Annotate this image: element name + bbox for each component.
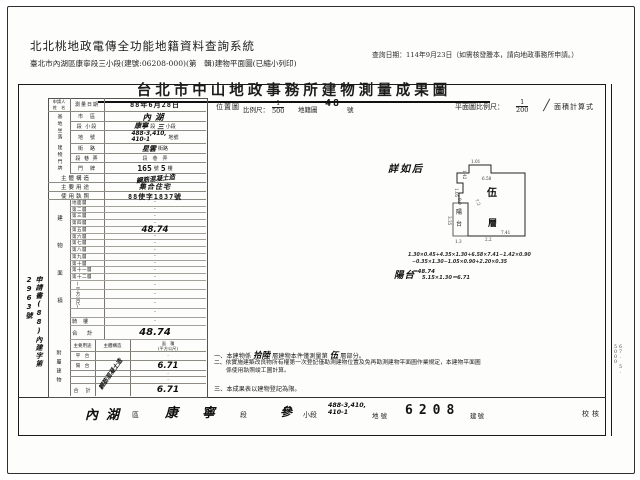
floor-label: 第九層	[70, 254, 104, 260]
structure-row: 主體構造 鋼筋混凝土造	[48, 174, 206, 183]
dim-diagonal: 7.2	[474, 198, 482, 207]
lot-number-row: 地 號 488-3,410, 410-1 地號	[70, 131, 206, 144]
lot-suffix: 地號	[169, 134, 179, 141]
survey-date-row: 測量日期 88年6月28日	[70, 98, 206, 112]
dim-balcony-bottom: 1.3	[455, 239, 462, 244]
lot-value-line2: 410-1	[131, 137, 166, 143]
floor-row-4: 第四層·	[70, 220, 206, 227]
floor-label	[70, 281, 104, 289]
footer-check-label: 校核	[582, 409, 602, 419]
floor-row-9: 第九層·	[70, 254, 206, 261]
plan-storey-label: 層	[488, 217, 497, 229]
footer-lot-line1: 488-3,410,	[328, 402, 366, 409]
arcade-label: 騎 樓	[70, 318, 104, 325]
floor-value: ·	[104, 254, 206, 260]
floor-total-row: 合 計48.74	[70, 326, 206, 340]
annex-use	[70, 371, 95, 376]
document-subtitle: 臺北市內湖區康寧段三小段(建號:06208-000)(第 輯)建物平面圖(已縮小…	[30, 58, 297, 69]
floor-value: ·	[104, 207, 206, 213]
plan-scale-fraction: 1200	[516, 96, 528, 115]
section-value-hw: 康寧	[134, 121, 148, 131]
balcony-area-value: 6.71	[158, 361, 179, 371]
annex-header-row: 主要用途 主體構造 面 積 (平方公尺)	[70, 340, 206, 352]
building-address-group-label: 建物門牌	[48, 144, 70, 174]
annex-total-value: 6.71	[157, 385, 179, 395]
floor-label: 第五層	[70, 227, 104, 233]
floor-value: ·	[104, 261, 206, 267]
dim-bottom-edge: 7.41	[501, 230, 511, 235]
floor-label: 第四層	[70, 220, 104, 226]
floor-value: ·	[104, 300, 206, 308]
query-date: 查詢日期：114年9月23日（如需核發謄本，請向地政事務所申請。）	[372, 49, 578, 59]
footer-district: 內湖	[85, 404, 127, 423]
plan-scale-denominator: 200	[516, 107, 528, 114]
floor-value: ·	[104, 247, 206, 253]
annex-area: ·	[130, 377, 206, 383]
floor-label: 第八層	[70, 247, 104, 253]
floor-area-group-label: 建物面積	[48, 205, 70, 335]
annex-use: 平 台	[70, 352, 95, 360]
floor-row-6: 第六層·	[70, 234, 206, 241]
footer-building-suffix: 建號	[470, 410, 485, 420]
section-suffix-1: 段	[150, 123, 155, 130]
structure-label: 主體構造	[48, 174, 104, 182]
dim-bottom-small: 2.2	[485, 237, 492, 242]
balcony-outline	[453, 203, 468, 236]
house-number-p1: 號	[154, 165, 159, 172]
note-2: 二、依實施建築改良物所有權第一次登記僅勘測建物位置及免再勘測建物平面圖作業規定，…	[214, 360, 486, 375]
lane-alley-label: 段 巷 弄	[70, 154, 104, 162]
footer-lot-numbers: 488-3,410, 410-1	[328, 402, 366, 416]
cadastre-map-number: 48	[325, 98, 341, 109]
survey-date-value: 88年6月28日	[130, 100, 180, 110]
system-title: 北北桃地政電傳全功能地籍資料查詢系統	[30, 38, 255, 54]
see-note-handwriting: 詳如后	[388, 160, 424, 175]
floor-row-blank-4: ·	[70, 309, 206, 318]
floor-row-blank-1: ·	[70, 281, 206, 290]
house-number-hw1: 165	[137, 164, 151, 173]
footer-subsection-suffix: 小段	[303, 410, 317, 420]
annex-area: ·	[130, 371, 206, 376]
lot-number-label: 地 號	[70, 131, 104, 143]
floor-row-5: 第五層48.74	[70, 227, 206, 234]
note-1-number: 一、	[214, 353, 226, 360]
dim-notch-side: 1.42	[462, 170, 467, 180]
floor-row-blank-2: ·	[70, 290, 206, 299]
annex-row-balcony: 陽 台 6.71	[70, 361, 206, 371]
footer-section-suffix: 段	[240, 410, 247, 420]
floor-label	[70, 300, 104, 308]
floor-row-blank-3: ·	[70, 300, 206, 309]
lane-alley-value: 段 巷 弄	[104, 154, 206, 162]
floor-row-ground: 地面層·	[70, 200, 206, 207]
annex-header-use: 主要用途	[70, 340, 95, 351]
floor-value: ·	[104, 309, 206, 317]
floor-label: 第十二層	[70, 274, 104, 280]
annex-use	[70, 377, 95, 383]
floor-label: 第十一層	[70, 268, 104, 274]
house-number-label: 門 牌	[70, 163, 104, 173]
note-1-b: 層建物本件僅測量第	[272, 353, 328, 360]
floor-value: ·	[104, 234, 206, 240]
print-batch-code: 67. 5. 5000	[613, 345, 623, 385]
floor-label: 地面層	[70, 200, 104, 206]
floor-row-2: 第二層·	[70, 207, 206, 214]
annex-total-row: 合 計 6.71	[70, 384, 206, 396]
floor-label: 第三層	[70, 214, 104, 220]
street-label: 街 路	[70, 144, 104, 153]
floor-value: ·	[104, 281, 206, 289]
floor-value: ·	[104, 274, 206, 280]
area-calc-line-2: −0.35×1.30−1.05×0.90+2.20×0.35	[412, 260, 507, 265]
floor-label: 第七層	[70, 241, 104, 247]
floor-label: 第二層	[70, 207, 104, 213]
footer-district-suffix: 區	[132, 410, 139, 420]
floor-label: 第六層	[70, 234, 104, 240]
note-1-c: 層部分。	[340, 353, 365, 360]
footer-lot-line2: 410-1	[328, 409, 366, 416]
note-1-a: 本建物係	[226, 353, 251, 360]
annex-area: ·	[130, 352, 206, 360]
survey-date-label: 測量日期	[70, 98, 104, 111]
dim-left-jog-2: 0.9	[457, 198, 462, 205]
plan-balcony-char1: 陽	[456, 208, 462, 216]
section-label: 段 小段	[70, 122, 104, 130]
section-row: 段 小段 康寧 段 三 小段	[70, 122, 206, 131]
area-calc-line-1: 1.30×0.45+4.35×1.30+6.58×7.41−1.42×0.90	[408, 253, 531, 258]
balcony-calc-line: 5.15×1.30＝6.71	[422, 274, 470, 281]
license-label: 使用執照	[48, 192, 104, 199]
floor-label: 第十層	[70, 261, 104, 267]
annex-group-label: 附屬建物	[48, 342, 70, 394]
floor-value: ·	[104, 214, 206, 220]
floor-total-value: 48.74	[139, 327, 171, 338]
arcade-value: ·	[104, 318, 206, 325]
dim-top-notch: 1.01	[471, 159, 481, 164]
annex-header-area-unit: (平方公尺)	[158, 346, 178, 351]
usage-label: 主要用途	[48, 183, 104, 191]
cadastre-map-label: 地籍圖	[298, 104, 318, 114]
floor-row-12: 第十二層·	[70, 274, 206, 281]
location-map-label: 位置圖	[216, 102, 240, 112]
dim-left-jog-1: 1.05	[454, 188, 459, 198]
section-suffix-2: 小段	[166, 123, 176, 130]
district-label: 市 區	[70, 112, 104, 121]
annex-use: 陽 台	[70, 361, 95, 370]
location-scale-fraction: 1500	[272, 97, 284, 116]
house-number-row: 門 牌 165 號 5 樓	[70, 163, 206, 174]
applicant-name-cell: 申請人 姓 名	[48, 98, 70, 112]
floor-value: ·	[104, 268, 206, 274]
footer-building-number: 6208	[405, 403, 460, 418]
application-number-stamp: 申請書(88)內建字第2963號	[24, 276, 44, 392]
street-value-hw: 星雲	[142, 144, 156, 154]
floor-label	[70, 290, 104, 298]
subsection-value-hw: 三	[157, 121, 164, 131]
annex-total-label: 合 計	[70, 384, 95, 396]
plan-floor-label: 伍	[486, 186, 497, 199]
license-row: 使用執照 88使字1837號	[48, 192, 206, 200]
dim-balcony-side: 3.35	[447, 216, 452, 226]
floor-row-3: 第三層·	[70, 214, 206, 221]
floor-plan-sketch: 伍 層 陽 台 1.01 1.42 6.58 7.2 7.41 2.2 1.05…	[425, 146, 615, 261]
balcony-calc-label: 陽台	[394, 267, 415, 281]
annex-row-platform: 平 台 ·	[70, 352, 206, 361]
floor-total-label: 合 計	[70, 326, 104, 339]
location-scale-denominator: 500	[272, 108, 284, 115]
applicant-label-line2: 姓 名	[48, 105, 70, 111]
site-group-label: 基地坐落	[48, 112, 70, 144]
footer-lot-suffix: 地號	[372, 410, 389, 420]
floor-row-7: 第七層·	[70, 241, 206, 248]
cadastre-number-suffix: 號	[347, 104, 354, 114]
street-row: 街 路 星雲 街路	[70, 144, 206, 154]
plan-balcony-char2: 台	[456, 220, 462, 228]
footer-subsection: 參	[280, 403, 292, 420]
floor-row-8: 第八層·	[70, 247, 206, 254]
lane-alley-row: 段 巷 弄 段 巷 弄	[70, 154, 206, 163]
arcade-row: 騎 樓·	[70, 318, 206, 326]
plan-scale-label: 平面圖比例尺：	[455, 102, 504, 112]
floor-value: ·	[104, 241, 206, 247]
floor-value: ·	[104, 200, 206, 206]
note-3: 三、本成果表以建物登記為限。	[214, 384, 301, 393]
floor-label	[70, 309, 104, 317]
street-printed: 街路	[158, 145, 168, 152]
floor-value: ·	[104, 290, 206, 298]
footer-section: 康寧	[165, 402, 239, 421]
location-scale-label: 比例尺：	[243, 104, 269, 114]
annex-row-blank-2: ·	[70, 377, 206, 384]
dim-top-edge: 6.58	[482, 176, 492, 181]
area-calc-label: 面積計算式	[554, 102, 594, 112]
